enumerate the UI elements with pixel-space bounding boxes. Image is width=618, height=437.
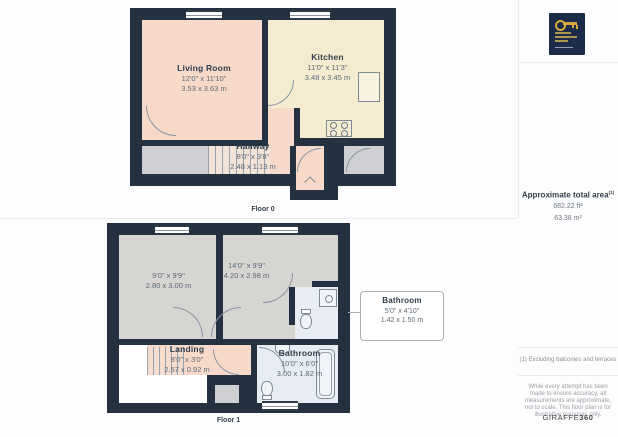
window-bathroom xyxy=(262,401,298,411)
area-footnote-marker: (1) xyxy=(609,190,615,195)
kitchen-counter xyxy=(358,72,380,102)
bathroom-small-wall-top xyxy=(312,281,338,287)
bathroom-small-callout: Bathroom 5'0" x 4'10" 1.42 x 1.50 m xyxy=(360,291,444,341)
total-area-m: 63.38 m² xyxy=(518,215,618,222)
floor0-plan: Living Room 12'0" x 11'10" 3.53 x 3.63 m… xyxy=(130,8,396,220)
bathtub-icon xyxy=(316,349,335,399)
floor0-caption: Floor 0 xyxy=(130,206,396,213)
sidebar-divider-footnote xyxy=(518,347,618,348)
floorplan-page: Living Room 12'0" x 11'10" 3.53 x 3.63 m… xyxy=(0,0,618,437)
window-bedroom1 xyxy=(155,225,189,235)
logo-text-line xyxy=(555,47,573,48)
logo-text-line xyxy=(555,36,577,38)
stairs-floor0 xyxy=(208,146,270,174)
area-footnote: (1) Excluding balconies and terraces xyxy=(518,357,618,363)
giraffe360-brand: GIRAFFE360 xyxy=(518,413,618,422)
shower-icon xyxy=(319,289,337,307)
stairs-floor1 xyxy=(147,347,185,375)
sidebar-divider xyxy=(518,0,519,218)
callout-dims-ft: 5'0" x 4'10" xyxy=(361,307,443,316)
callout-dims-m: 1.42 x 1.50 m xyxy=(361,316,443,325)
sidebar-divider-logo xyxy=(518,62,618,63)
window-kitchen xyxy=(290,10,330,20)
agency-logo xyxy=(549,13,585,55)
room-bedroom1 xyxy=(119,235,216,339)
porch-left xyxy=(142,146,208,174)
kitchen-corner-wall xyxy=(294,108,300,140)
bathroom-small-wall xyxy=(289,287,295,325)
sidebar-divider-disclaimer xyxy=(518,375,618,376)
stair-void-bottom xyxy=(119,375,207,403)
total-area-title: Approximate total area(1) xyxy=(518,190,618,200)
window-bedroom2 xyxy=(262,225,298,235)
callout-name: Bathroom xyxy=(361,296,443,307)
floor1-plan: 9'0" x 9'9" 2.80 x 3.00 m 14'0" x 9'9" 4… xyxy=(107,223,350,429)
callout-leader-line xyxy=(348,312,360,313)
total-area-ft: 682.22 ft² xyxy=(518,203,618,210)
stove-icon xyxy=(326,120,352,137)
stairwell-gray xyxy=(215,385,239,403)
sink-icon xyxy=(275,345,290,354)
floor1-caption: Floor 1 xyxy=(107,417,350,424)
toilet-icon-large xyxy=(261,381,273,396)
logo-text-line xyxy=(555,32,571,34)
logo-text-line xyxy=(555,40,568,42)
window-living xyxy=(186,10,222,20)
toilet-icon-small xyxy=(300,314,312,329)
